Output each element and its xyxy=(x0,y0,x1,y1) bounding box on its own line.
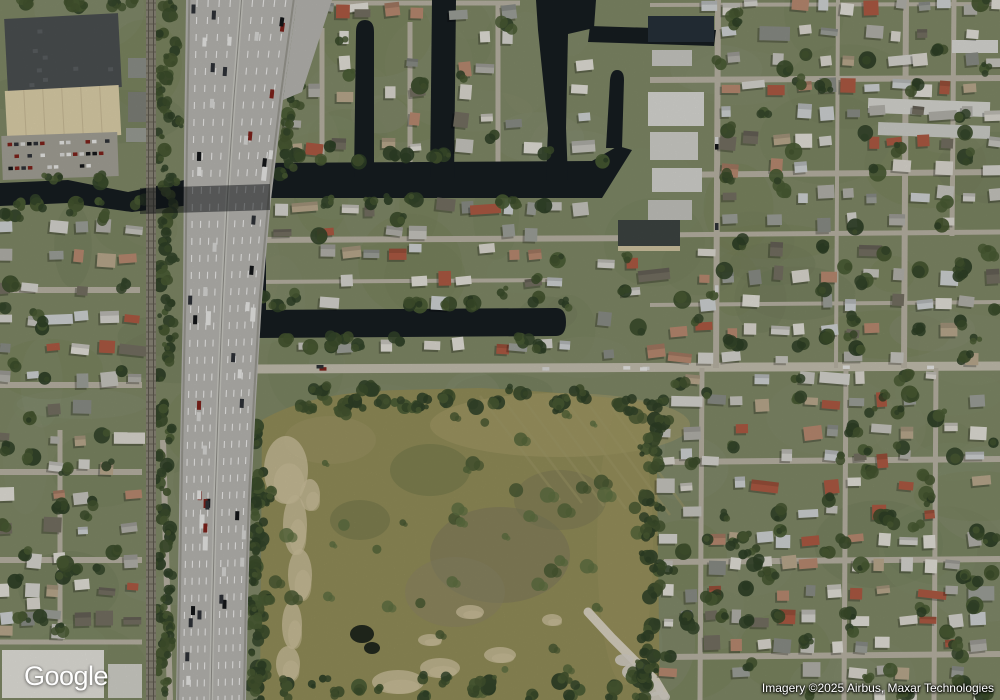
imagery-attribution: Imagery ©2025 Airbus, Maxar Technologies xyxy=(762,681,994,695)
satellite-map[interactable]: Google Imagery ©2025 Airbus, Maxar Techn… xyxy=(0,0,1000,700)
aerial-imagery xyxy=(0,0,1000,700)
google-logo[interactable]: Google xyxy=(24,661,108,692)
